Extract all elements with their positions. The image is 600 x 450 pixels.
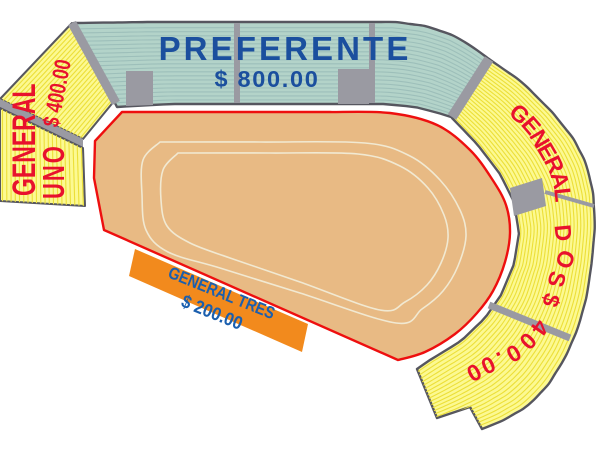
svg-text:UNO: UNO: [36, 144, 71, 199]
svg-text:$ 800.00: $ 800.00: [214, 66, 319, 92]
svg-text:PREFERENTE: PREFERENTE: [159, 30, 412, 67]
